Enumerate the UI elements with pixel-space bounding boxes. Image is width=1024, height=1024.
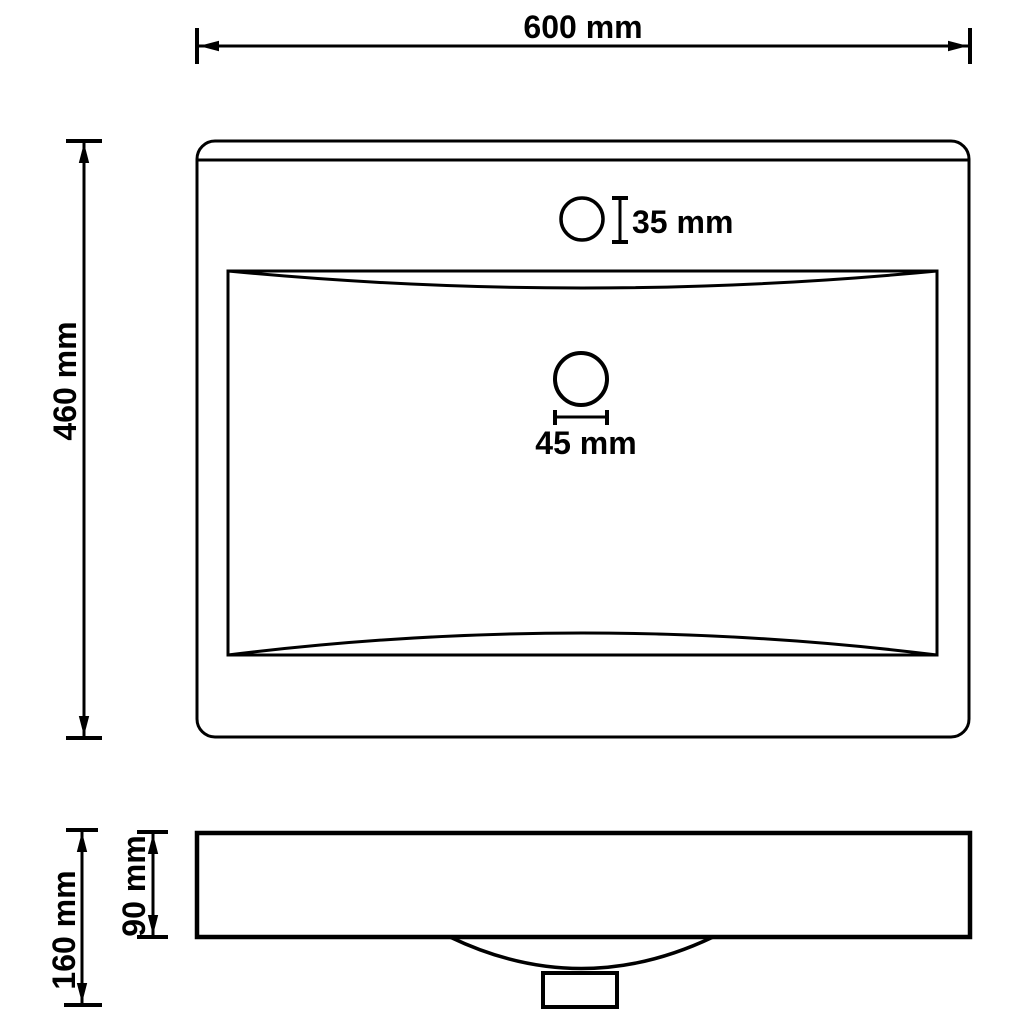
drain-hole-dimension-label: 45 mm xyxy=(535,425,636,461)
washbasin-dimension-drawing: 600 mm 460 mm 35 mm 45 mm xyxy=(0,0,1024,1024)
depth-dimension-460: 460 mm xyxy=(47,141,102,738)
basin-inner-top-curve xyxy=(228,271,937,288)
width-dimension-label: 600 mm xyxy=(523,9,642,45)
depth-dimension-label: 460 mm xyxy=(47,321,83,440)
drain-pipe xyxy=(543,973,617,1007)
total-height-dimension-label: 160 mm xyxy=(46,870,82,989)
basin-front-outline xyxy=(197,833,970,937)
basin-inner-outline xyxy=(228,271,937,655)
front-view xyxy=(197,833,970,1007)
faucet-hole-dimension-35: 35 mm xyxy=(612,198,733,242)
dimension-drawing-canvas: 600 mm 460 mm 35 mm 45 mm xyxy=(0,0,1024,1024)
faucet-hole xyxy=(561,198,603,240)
basin-inner-bottom-curve xyxy=(228,633,937,655)
faucet-hole-dimension-label: 35 mm xyxy=(632,204,733,240)
bowl-underside-curve xyxy=(450,937,713,969)
rim-height-dimension-90: 90 mm xyxy=(116,832,168,937)
drain-hole-dimension-45: 45 mm xyxy=(535,410,636,461)
width-dimension-600: 600 mm xyxy=(197,9,970,64)
drain-hole xyxy=(555,353,607,405)
total-height-dimension-160: 160 mm xyxy=(46,830,102,1005)
rim-height-dimension-label: 90 mm xyxy=(116,835,152,936)
